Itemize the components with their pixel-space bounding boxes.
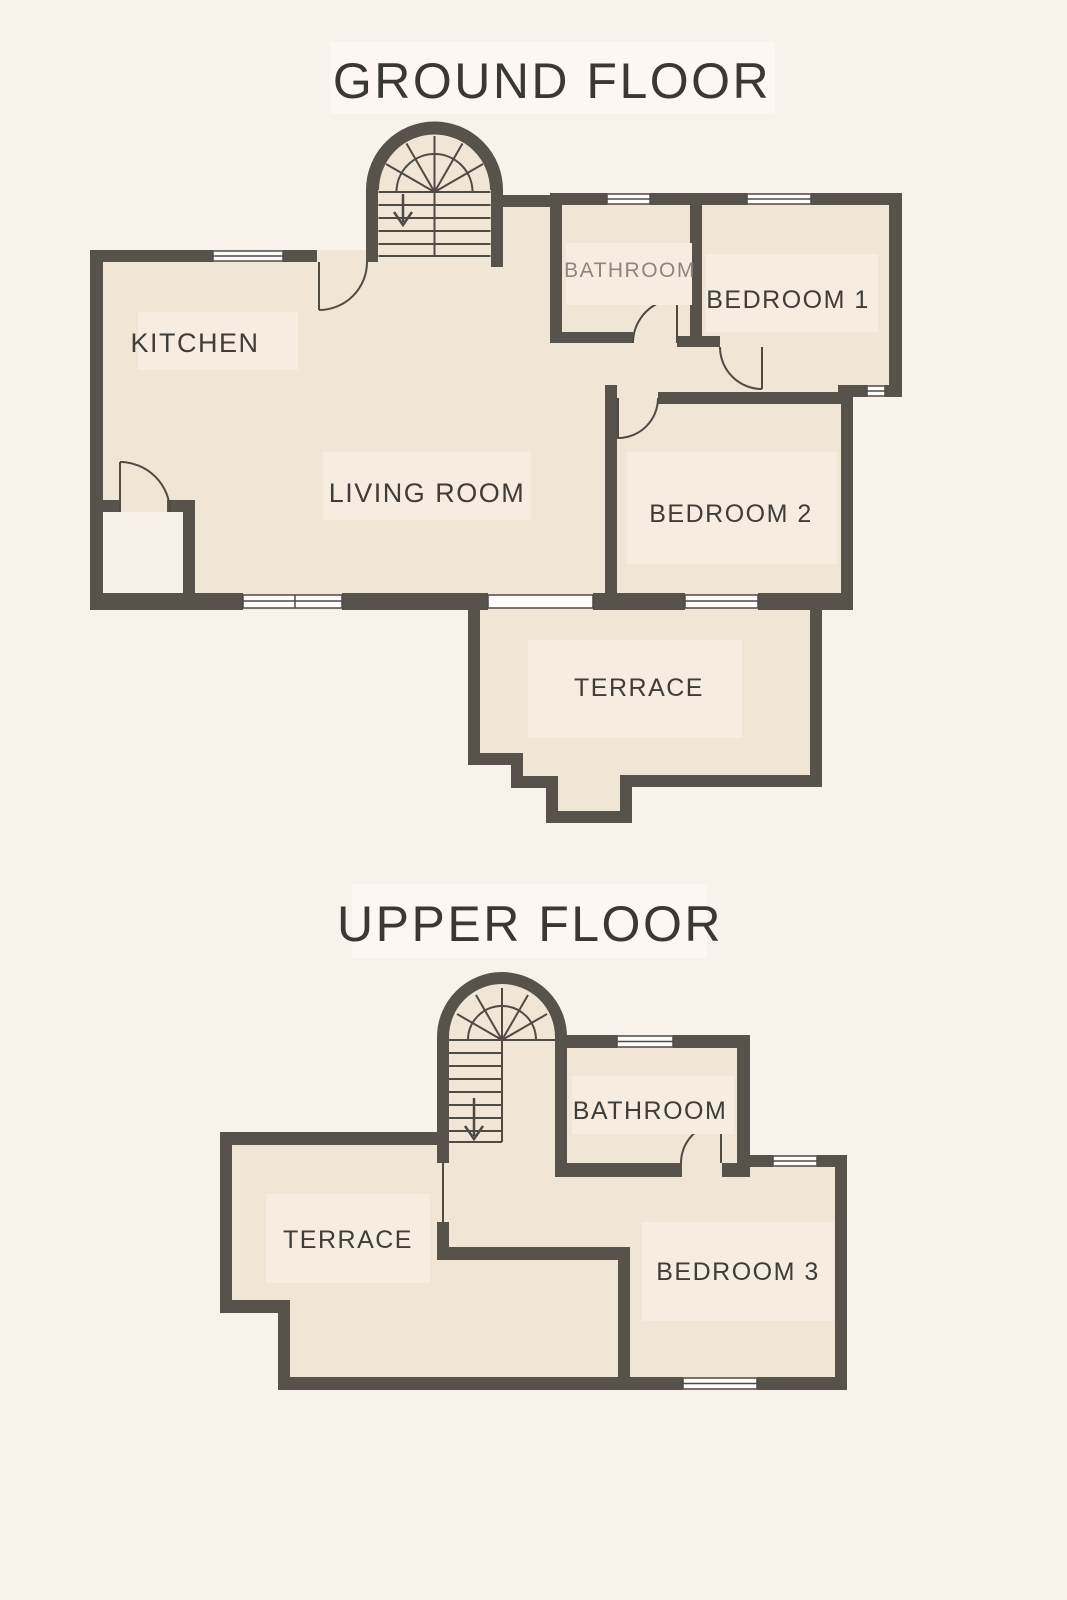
room-label-living-room: LIVING ROOM bbox=[329, 478, 526, 508]
room-label-bedroom2: BEDROOM 2 bbox=[649, 500, 813, 528]
room-label-bathroom-ground: BATHROOM bbox=[564, 259, 696, 282]
room-label-terrace-upper: TERRACE bbox=[283, 1226, 413, 1254]
terrace-door-opening bbox=[488, 595, 593, 608]
room-label-bathroom-upper: BATHROOM bbox=[573, 1097, 728, 1125]
entry-vestibule-fill bbox=[103, 512, 183, 593]
room-label-kitchen: KITCHEN bbox=[130, 328, 259, 358]
floorplan-canvas: GROUND FLOOR bbox=[0, 0, 1067, 1600]
room-label-terrace-ground: TERRACE bbox=[574, 674, 704, 702]
ground-floor-title: GROUND FLOOR bbox=[333, 53, 771, 109]
room-label-bedroom1: BEDROOM 1 bbox=[706, 286, 870, 314]
room-label-bedroom3: BEDROOM 3 bbox=[656, 1258, 820, 1286]
floorplan-page: GROUND FLOOR bbox=[0, 0, 1067, 1600]
upper-floor-title: UPPER FLOOR bbox=[337, 896, 723, 952]
